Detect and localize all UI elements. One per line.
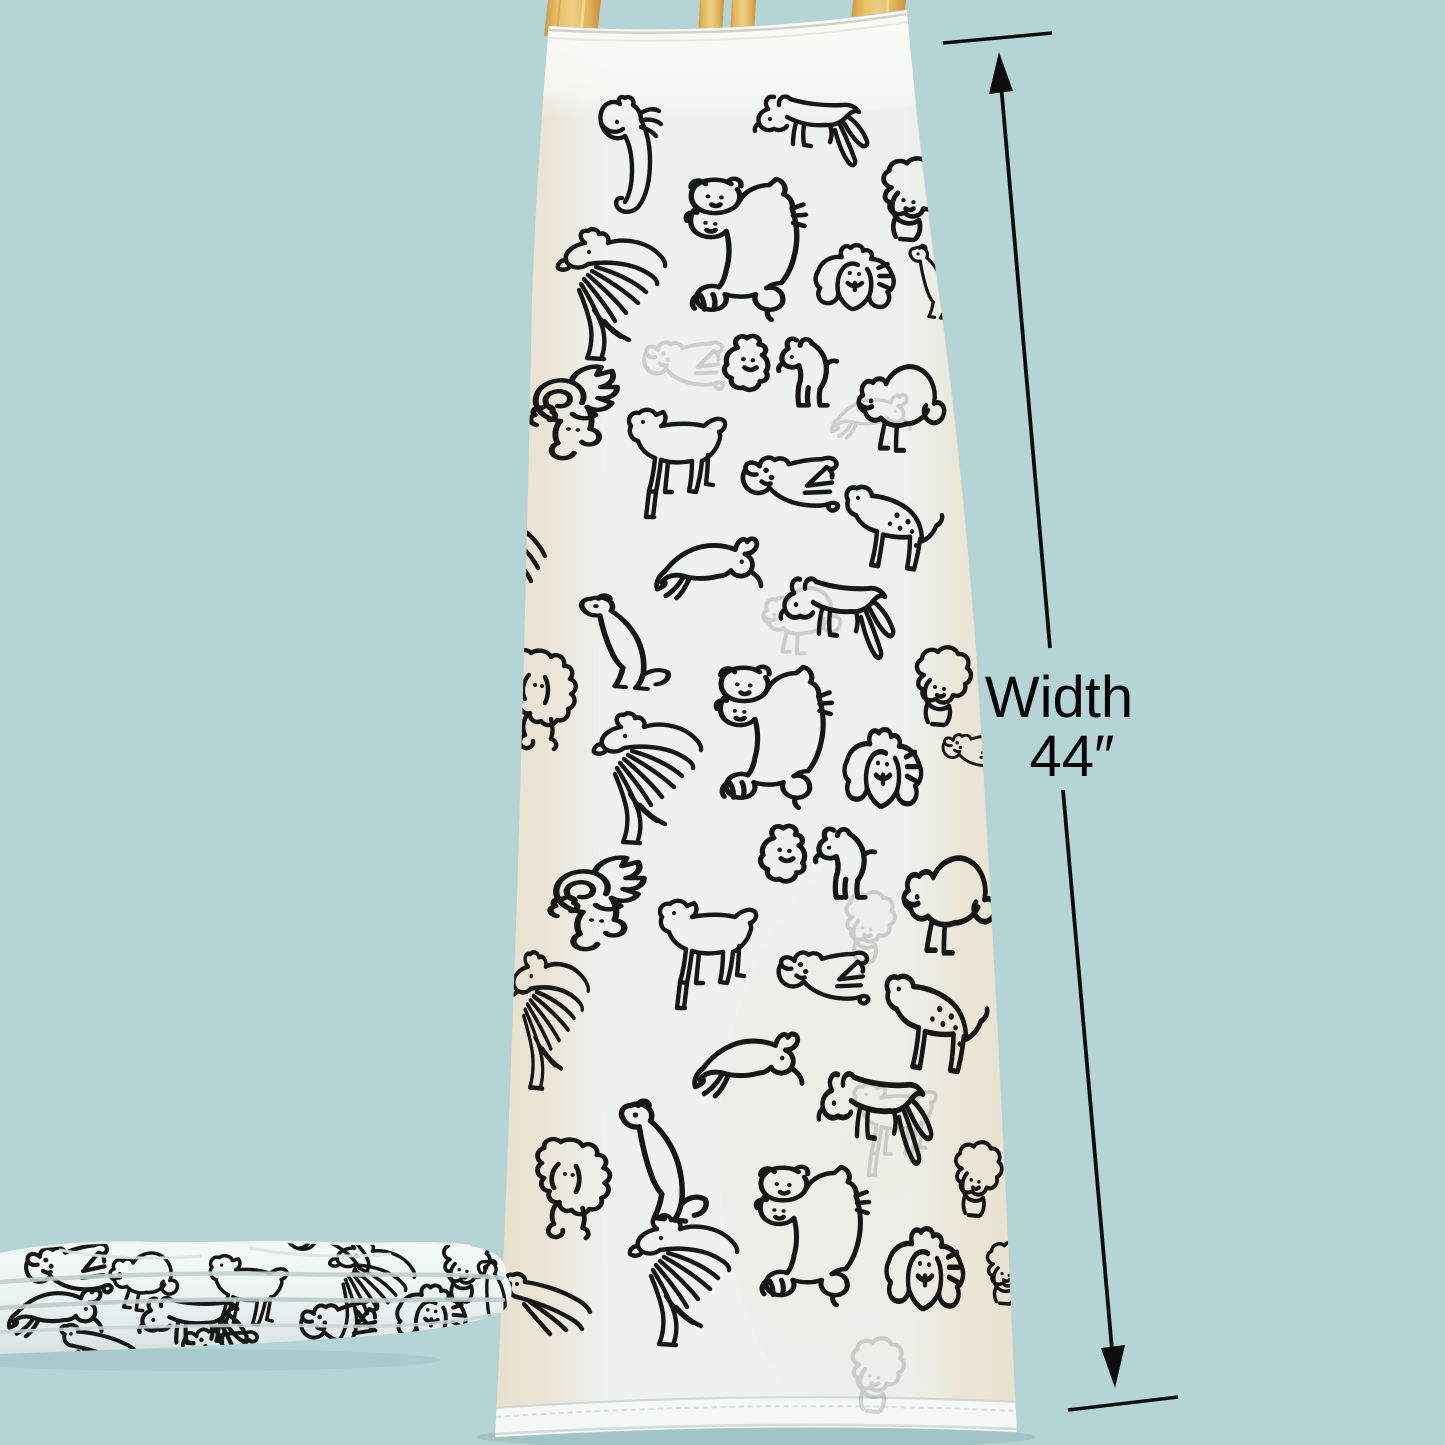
svg-text:44″: 44″	[1029, 724, 1114, 789]
svg-text:Width: Width	[985, 665, 1133, 730]
